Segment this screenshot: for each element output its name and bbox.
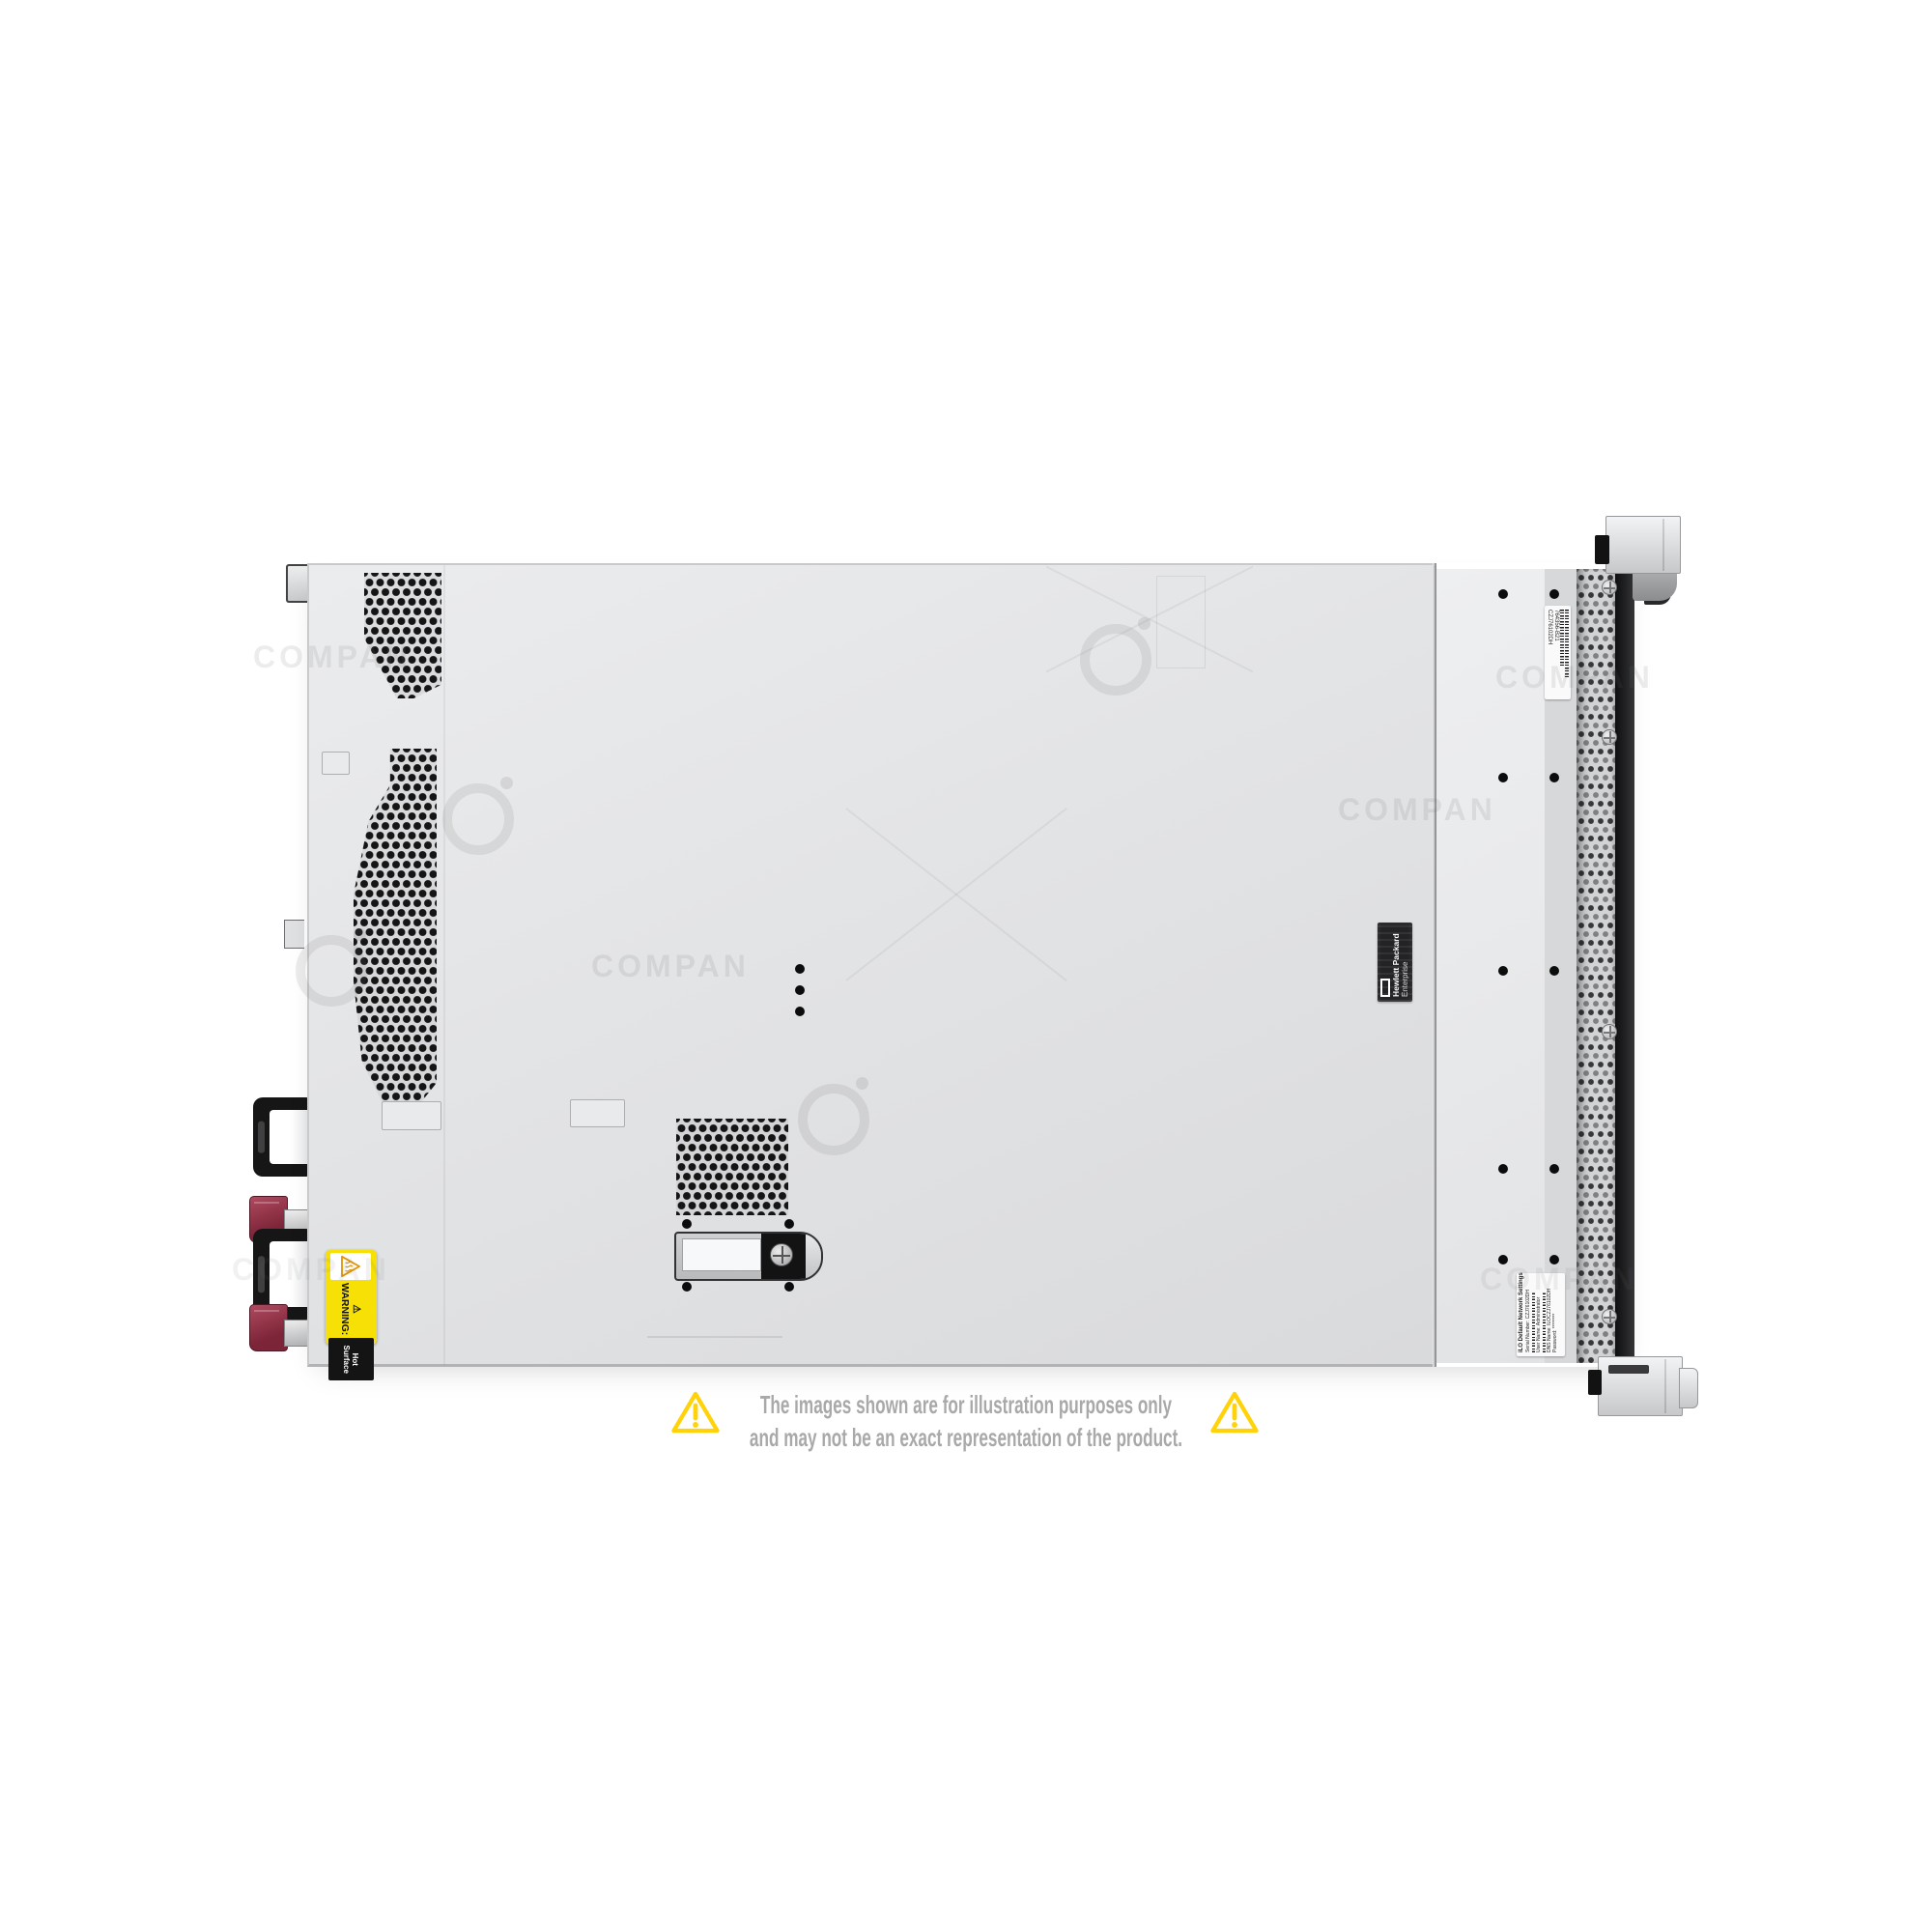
screw-hole: [784, 1219, 794, 1229]
screw-hole: [784, 1282, 794, 1292]
bezel-screw: [1602, 580, 1617, 595]
watermark-text: COMPAN: [1338, 792, 1496, 828]
disclaimer-text: The images shown are for illustration pu…: [750, 1388, 1182, 1454]
latch-security-screw: [770, 1243, 793, 1266]
watermark-text: COMPAN: [253, 639, 412, 675]
psu-handle-slot: [258, 1122, 265, 1153]
latch-end-cap: [806, 1234, 821, 1279]
panel-hole: [1549, 589, 1559, 599]
rack-ear-latch-top: [1595, 535, 1609, 564]
warning-word: ⚠ WARNING:: [340, 1283, 363, 1335]
panel-hole: [1498, 589, 1508, 599]
bezel-screw: [1602, 1309, 1617, 1324]
cover-hole: [795, 985, 805, 995]
psu-handle-top: [253, 1097, 309, 1177]
product-photo-stage: ⚠ WARNING: Hot Surface Hewlett Packard E…: [0, 0, 1932, 1932]
cover-emboss-outline: [1156, 576, 1206, 668]
cover-release-latch: [674, 1232, 823, 1281]
panel-hole: [1549, 773, 1559, 782]
panel-hole: [1498, 966, 1508, 976]
rack-ear-seam: [1662, 519, 1664, 571]
hpe-brand-label: Hewlett Packard Enterprise: [1378, 923, 1412, 1002]
rack-ear-bottom: [1598, 1356, 1683, 1416]
panel-hole: [1498, 1164, 1508, 1174]
warning-triangle-icon: [1209, 1389, 1260, 1440]
disclaimer-line1: The images shown are for illustration pu…: [750, 1388, 1182, 1421]
server-chassis: ⚠ WARNING: Hot Surface Hewlett Packard E…: [307, 563, 1633, 1367]
rack-ear-tab-bottom: [1679, 1368, 1698, 1408]
hpe-brand-line2: Enterprise: [1401, 962, 1409, 997]
panel-hole: [1498, 773, 1508, 782]
ci-logo-watermark-icon: [792, 1068, 879, 1155]
cover-hole: [795, 964, 805, 974]
vent-grid-center: [676, 1119, 788, 1215]
cover-hole: [795, 1007, 805, 1016]
disclaimer-line2: and may not be an exact representation o…: [750, 1421, 1182, 1454]
bezel-screw: [1602, 1024, 1617, 1039]
top-cover: [307, 563, 1435, 1367]
cover-tab: [322, 752, 350, 775]
psu-handle-cutout: [270, 1110, 309, 1164]
watermark-text: COMPAN: [232, 1252, 390, 1288]
ci-logo-watermark-icon: [290, 920, 377, 1007]
hot-surface-text: Hot Surface: [328, 1338, 374, 1380]
latch-recess: [682, 1238, 761, 1271]
screw-hole: [682, 1282, 692, 1292]
cover-tab: [382, 1101, 441, 1130]
barcode: [1532, 1293, 1535, 1352]
hpe-logo-icon: [1380, 979, 1390, 997]
hpe-label-content: Hewlett Packard Enterprise: [1378, 923, 1412, 1002]
barcode: [1560, 610, 1564, 666]
rack-ear-slot: [1608, 1365, 1649, 1374]
rack-ear-latch-bottom: [1588, 1370, 1602, 1395]
cover-seam: [443, 565, 445, 1365]
watermark-text: COMPAN: [591, 949, 750, 984]
cover-tab: [570, 1099, 625, 1127]
watermark-text: COMPAN: [1495, 660, 1654, 696]
ci-logo-watermark-icon: [1074, 609, 1161, 696]
rack-ear-top: [1605, 516, 1681, 574]
release-tab-maroon-bottom: [249, 1304, 288, 1351]
warning-triangle-icon: [670, 1389, 721, 1440]
panel-hole: [1549, 1164, 1559, 1174]
barcode: [1543, 1293, 1546, 1352]
watermark-text: COMPAN: [1480, 1262, 1638, 1297]
hpe-brand-line1: Hewlett Packard: [1392, 933, 1401, 997]
panel-hole: [1549, 966, 1559, 976]
ci-logo-watermark-icon: [437, 768, 524, 855]
screw-hole: [682, 1219, 692, 1229]
bezel-screw: [1602, 729, 1617, 745]
cover-seam: [647, 1336, 782, 1338]
rack-ear-seam: [1664, 1359, 1666, 1413]
